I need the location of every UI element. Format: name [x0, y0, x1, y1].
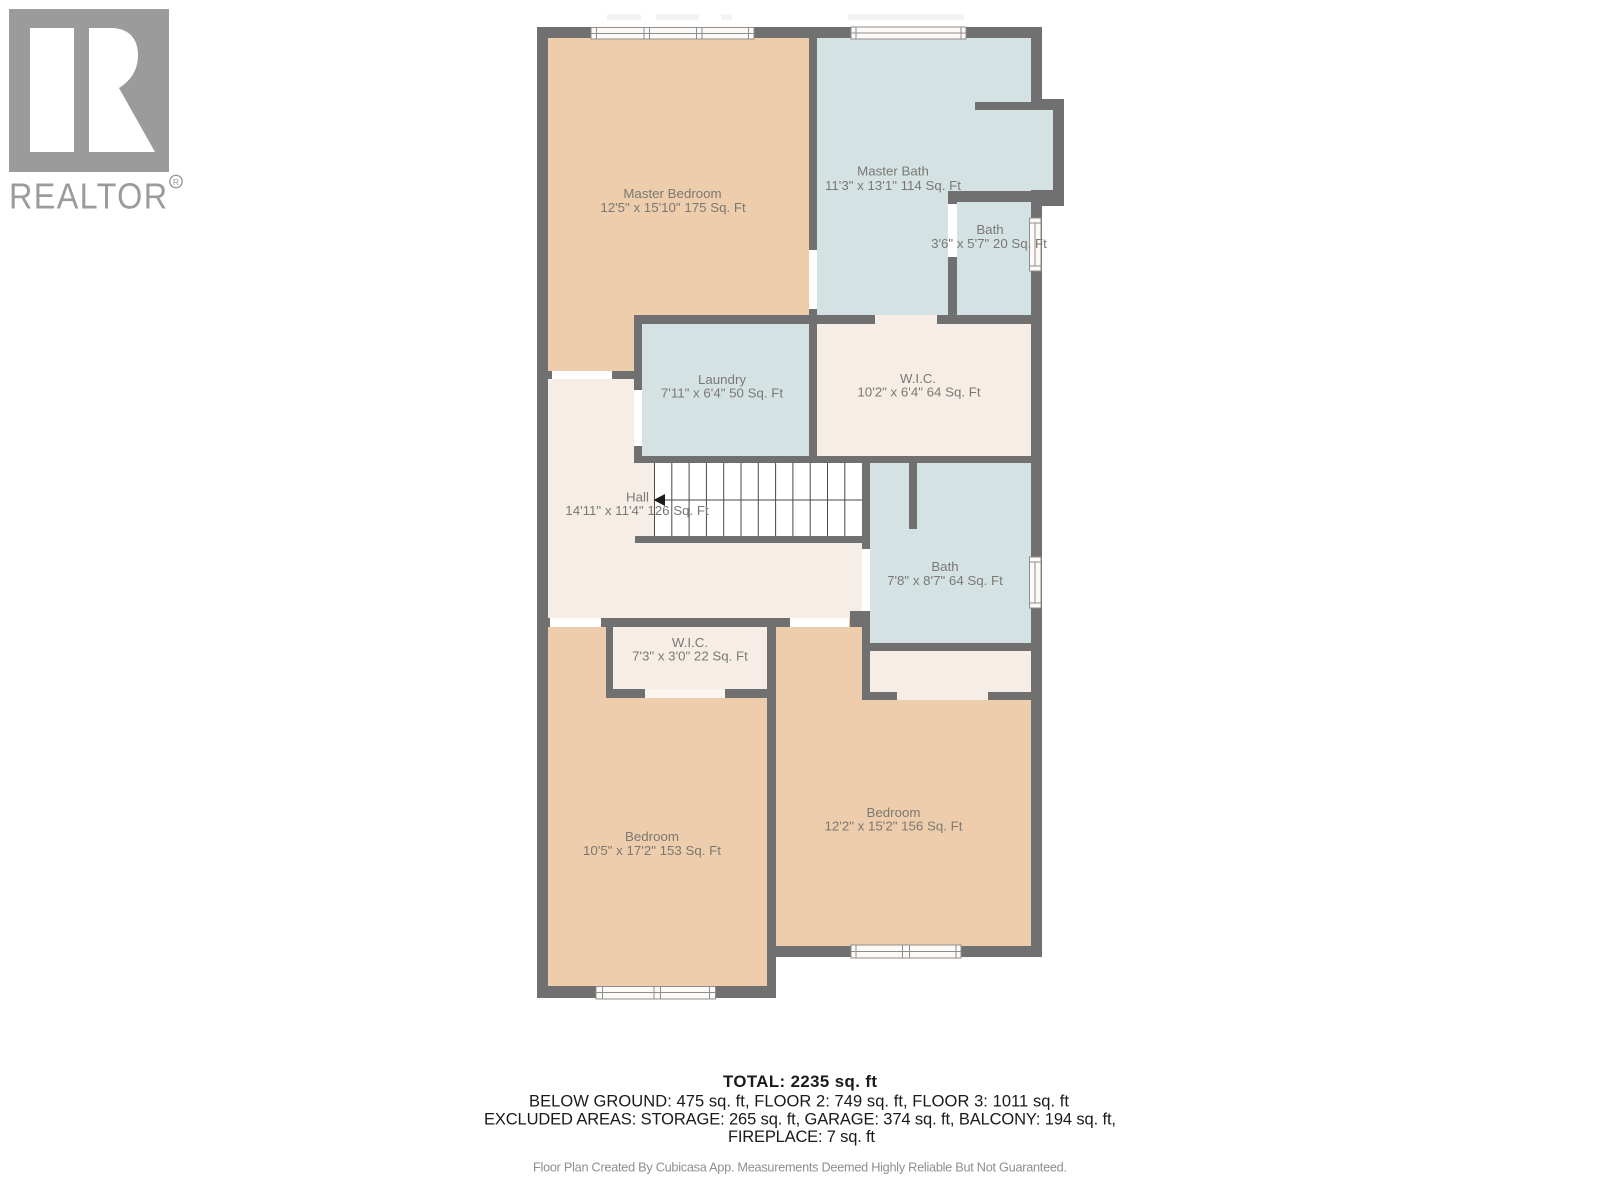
svg-text:EXCLUDED AREAS: STORAGE: 265 s: EXCLUDED AREAS: STORAGE: 265 sq. ft, GAR…: [484, 1111, 1116, 1129]
svg-text:Bedroom: Bedroom: [625, 829, 679, 844]
svg-text:7'8" x 8'7" 64 Sq. Ft: 7'8" x 8'7" 64 Sq. Ft: [887, 573, 1003, 588]
svg-text:7'11" x 6'4" 50 Sq. Ft: 7'11" x 6'4" 50 Sq. Ft: [661, 386, 783, 401]
svg-text:TOTAL: 2235 sq. ft: TOTAL: 2235 sq. ft: [723, 1072, 877, 1091]
svg-text:14'11" x 11'4" 126 Sq. Ft: 14'11" x 11'4" 126 Sq. Ft: [565, 503, 709, 518]
svg-text:7'3" x 3'0" 22 Sq. Ft: 7'3" x 3'0" 22 Sq. Ft: [632, 649, 748, 664]
svg-text:3'6" x 5'7" 20 Sq. Ft: 3'6" x 5'7" 20 Sq. Ft: [931, 236, 1047, 251]
svg-text:10'2" x 6'4" 64 Sq. Ft: 10'2" x 6'4" 64 Sq. Ft: [857, 385, 980, 400]
svg-text:BELOW GROUND: 475 sq. ft, FLOO: BELOW GROUND: 475 sq. ft, FLOOR 2: 749 s…: [529, 1092, 1069, 1110]
svg-text:Bath: Bath: [931, 559, 958, 574]
svg-text:Floor Plan Created By Cubicasa: Floor Plan Created By Cubicasa App. Meas…: [533, 1161, 1067, 1175]
svg-text:R: R: [173, 177, 179, 187]
svg-text:Bath: Bath: [976, 222, 1003, 237]
svg-text:12'5" x 15'10" 175 Sq. Ft: 12'5" x 15'10" 175 Sq. Ft: [600, 200, 746, 215]
svg-text:11'3" x 13'1" 114 Sq. Ft: 11'3" x 13'1" 114 Sq. Ft: [825, 178, 961, 193]
svg-text:Master Bedroom: Master Bedroom: [623, 186, 721, 201]
svg-text:10'5" x 17'2" 153 Sq. Ft: 10'5" x 17'2" 153 Sq. Ft: [583, 843, 721, 858]
svg-text:12'2" x 15'2" 156 Sq. Ft: 12'2" x 15'2" 156 Sq. Ft: [825, 819, 963, 834]
svg-text:Master Bath: Master Bath: [857, 164, 929, 179]
svg-text:REALTOR: REALTOR: [9, 177, 168, 217]
svg-text:FIREPLACE: 7 sq. ft: FIREPLACE: 7 sq. ft: [728, 1128, 875, 1146]
